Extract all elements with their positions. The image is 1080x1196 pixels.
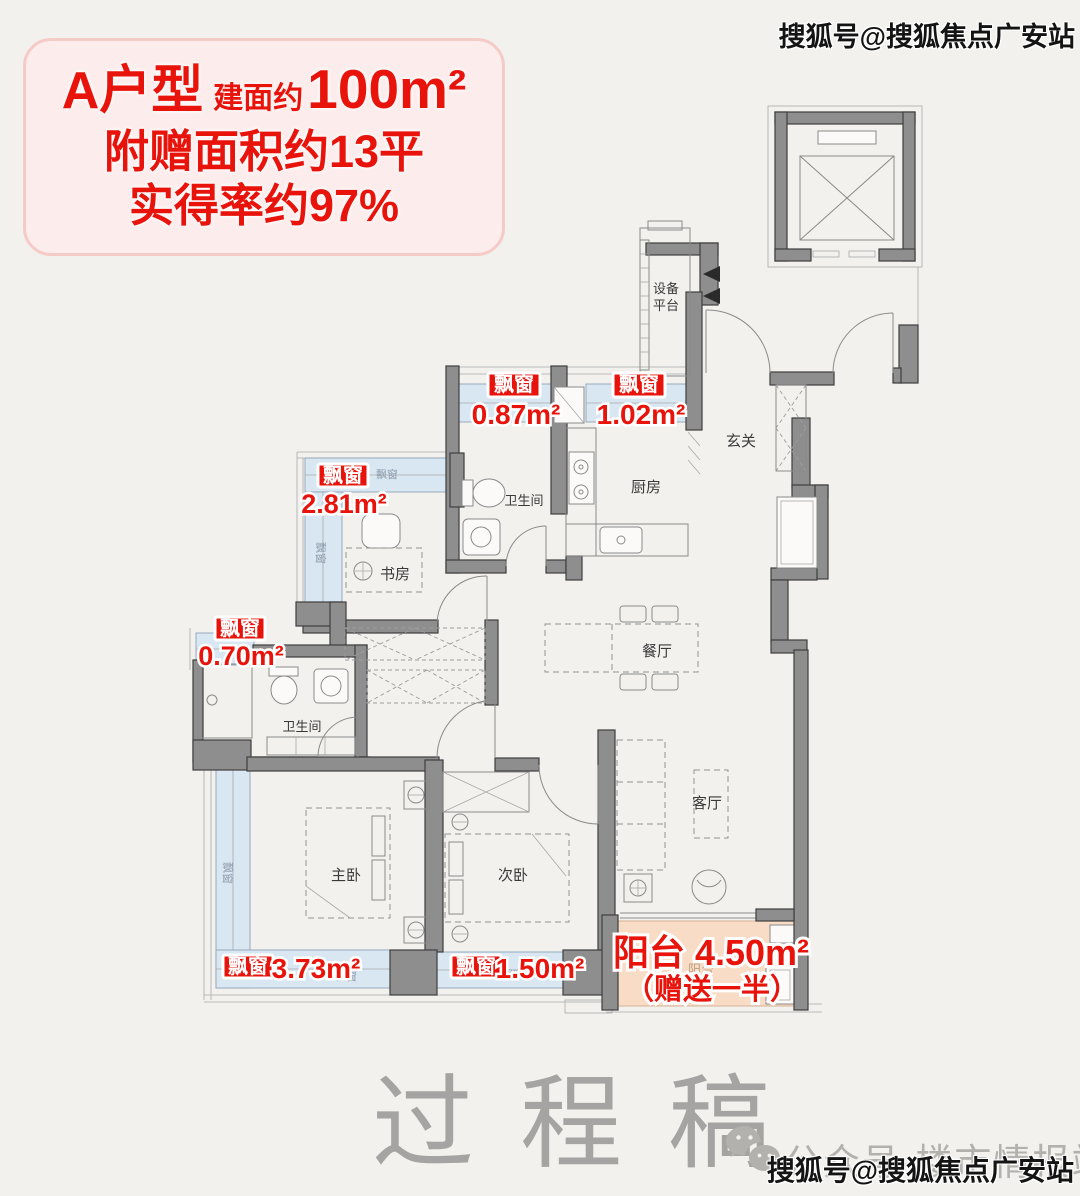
bay-badge-label: 飘窗 xyxy=(228,954,268,978)
bay-area-value: 1.50m² xyxy=(496,953,585,984)
bay-badge-label: 飘窗 xyxy=(494,372,534,396)
label-bay-small: 飘窗 xyxy=(376,467,398,481)
label-bay-small: 飘窗 xyxy=(221,862,235,884)
bay-badge-label: 飘窗 xyxy=(456,954,496,978)
label-second-bedroom: 次卧 xyxy=(498,867,528,884)
label-dining: 餐厅 xyxy=(642,643,672,660)
balcony-note: （赠送一半） xyxy=(625,973,799,1006)
area-value: 100m² xyxy=(307,58,466,120)
bay-area-value: 0.70m² xyxy=(198,641,284,671)
bay-badge-label: 飘窗 xyxy=(323,463,363,487)
sink xyxy=(314,669,348,703)
label-kitchen: 厨房 xyxy=(631,479,661,496)
rate-line: 实得率约97% xyxy=(129,179,399,232)
bay-area-value: 3.73m² xyxy=(272,953,361,984)
label-study: 书房 xyxy=(380,566,410,583)
balcony-annotation: 阳台 4.50m² （赠送一半） xyxy=(613,932,809,1006)
label-bay-small: 飘窗 xyxy=(314,542,328,564)
balcony-area-value: 阳台 4.50m² xyxy=(613,932,809,973)
label-bathroom: 卫生间 xyxy=(504,493,543,508)
label-bathroom2: 卫生间 xyxy=(282,719,321,734)
area-prefix: 建面约 xyxy=(213,82,303,115)
bed xyxy=(306,808,390,918)
bay-area-value: 0.87m² xyxy=(472,399,561,430)
label-entry: 玄关 xyxy=(726,433,756,450)
label-living: 客厅 xyxy=(692,795,722,812)
sofa xyxy=(617,740,665,870)
bay-badge-label: 飘窗 xyxy=(619,372,659,396)
unit-name: A户型 xyxy=(62,62,204,120)
bay-area-value: 2.81m² xyxy=(301,489,387,519)
bay-badge-label: 飘窗 xyxy=(220,616,260,640)
bonus-area-line: 附赠面积约13平 xyxy=(104,125,424,178)
unit-info-card: A户型建面约100m² 附赠面积约13平 实得率约97% xyxy=(23,38,505,256)
watermark-sohu-top: 搜狐号@搜狐焦点广安站 xyxy=(779,15,1075,54)
fridge xyxy=(777,497,817,568)
kitchen-sink xyxy=(600,527,642,553)
unit-title-line: A户型建面约100m² xyxy=(62,62,467,117)
dining-table xyxy=(545,624,698,672)
watermark-sohu-bottom: 搜狐号@搜狐焦点广安站 xyxy=(767,1149,1074,1189)
chair xyxy=(362,514,400,548)
sink xyxy=(463,519,500,555)
label-master-bedroom: 主卧 xyxy=(331,867,361,884)
toilet xyxy=(462,480,473,506)
bay-area-value: 1.02m² xyxy=(597,399,686,430)
label-equipment-platform: 平台 xyxy=(653,298,679,313)
cabinet xyxy=(267,737,355,755)
elevator xyxy=(800,131,894,257)
page: 设备 平台 玄关 厨房 卫生间 书房 卫生间 餐厅 客厅 主卧 次卧 飘窗 飘窗… xyxy=(0,0,1080,1196)
label-equipment-platform: 设备 xyxy=(653,281,679,296)
shower xyxy=(198,664,252,738)
